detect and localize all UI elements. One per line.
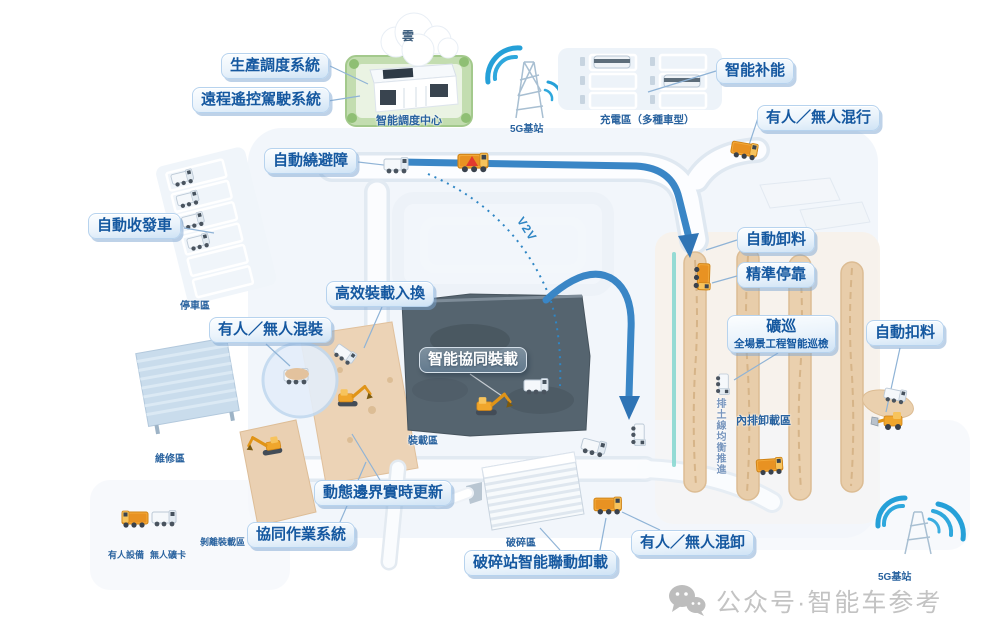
callout-mine-patrol: 礦巡 全場景工程智能巡檢 [727,315,836,353]
callout-auto-obstacle-avoidance: 自動繞避障 [264,148,357,174]
callout-remote-driving: 遠程遙控駕駛系統 [192,87,330,113]
maintenance-area [136,338,241,436]
mine-patrol-subtitle: 全場景工程智能巡檢 [734,337,829,351]
callout-auto-dispatch-return: 自動收發車 [88,213,181,239]
callout-mixed-driving: 有人／無人混行 [757,105,880,131]
zone-5g-station-right: 5G基站 [878,568,911,583]
callout-collaborative-operation-system: 協同作業系統 [247,522,355,548]
callout-mixed-loading: 有人／無人混裝 [209,317,332,343]
zone-crushing-area: 破碎區 [506,534,536,549]
zone-maintenance-area: 維修區 [155,450,185,465]
warning-truck [458,153,488,172]
callout-precise-docking: 精準停靠 [737,262,815,288]
cloud-label: 雲 [402,27,414,44]
callout-crusher-station-linked-unloading: 破碎站智能聯動卸載 [464,550,617,576]
callout-mixed-unloading: 有人／無人混卸 [631,530,754,556]
callout-efficient-loading-rotation: 高效裝載入換 [326,281,434,307]
zone-inner-dump-area: 內排卸載區 [736,412,791,428]
mine-patrol-title: 礦巡 [766,318,796,335]
zone-parking-area: 停車區 [180,297,210,312]
callout-production-scheduling: 生產調度系統 [221,53,329,79]
charging-area [558,48,722,110]
zone-dump-line-note: 排土線均衡推進 [712,398,727,475]
callout-smart-collaborative-loading: 智能協同裝載 [419,347,527,373]
circle-load-truck [284,368,309,384]
zone-5g-station-left: 5G基站 [510,120,543,135]
callout-smart-recharging: 智能补能 [716,58,794,84]
callout-auto-material-cutoff: 自動扣料 [866,320,944,346]
zone-stripping-loading-area: 剝離裝載區 [200,535,245,548]
zone-loading-area: 裝載區 [408,432,438,447]
smart-mine-diagram: 生產調度系統 遠程遙控駕駛系統 智能补能 有人／無人混行 自動繞避障 自動收發車… [0,0,1004,640]
watermark: 公众号·智能车参考 [668,583,942,619]
zone-manned-equipment: 有人設備 [108,548,144,561]
watermark-text: 公众号·智能车参考 [716,583,942,619]
zone-charging-area: 充電區（多種車型） [600,112,695,127]
zone-unmanned-truck: 無人礦卡 [150,548,186,561]
g5-tower-left-icon [488,48,561,118]
zone-dispatch-center: 智能調度中心 [376,112,442,128]
callout-dynamic-boundary-update: 動態邊界實時更新 [314,480,452,506]
wechat-icon [668,584,706,618]
callout-auto-unloading: 自動卸料 [737,227,815,253]
scene-art [0,0,1004,640]
